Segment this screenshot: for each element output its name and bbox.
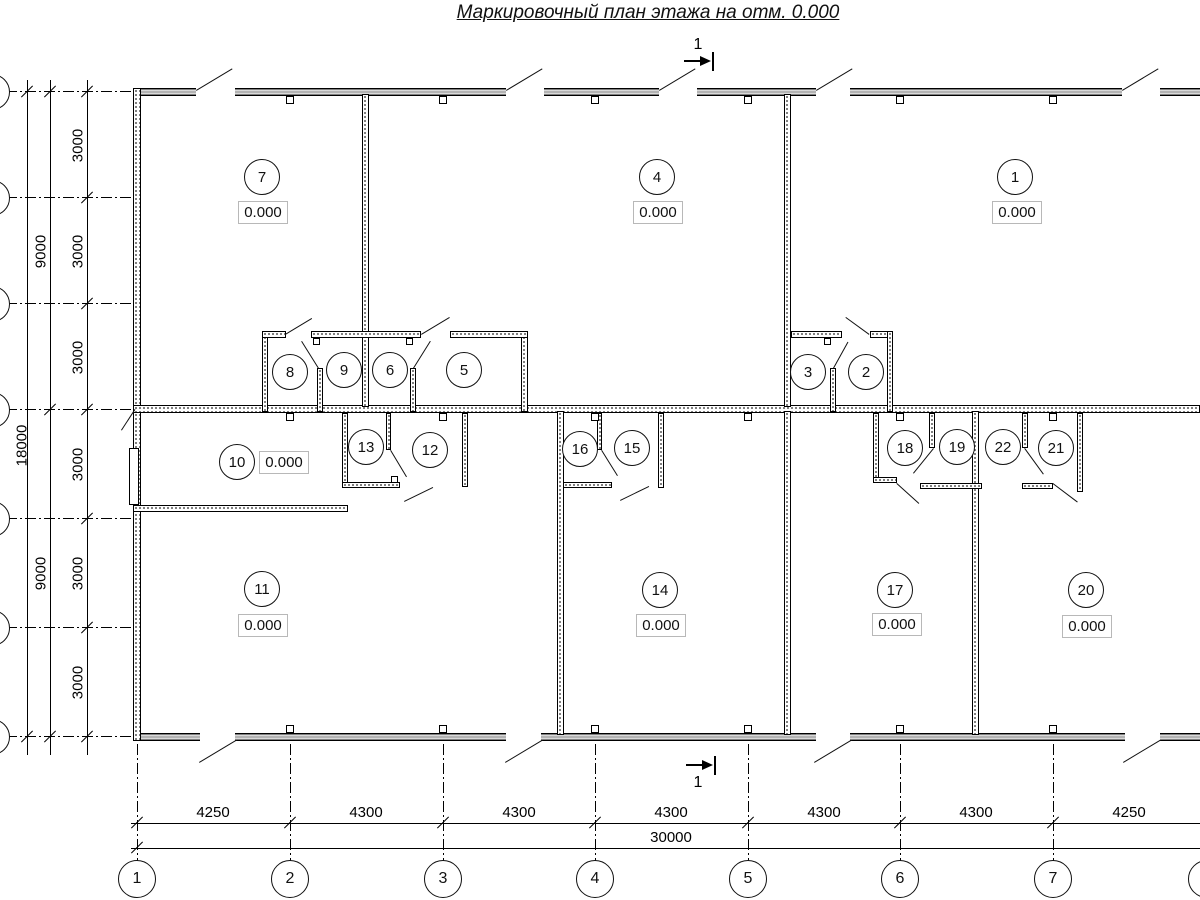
wall: [1022, 483, 1053, 489]
dim-label: 4300: [794, 804, 854, 821]
column-marker: [896, 96, 904, 104]
window-band: [544, 88, 659, 96]
door-swing: [620, 486, 649, 501]
room-number: 14: [652, 582, 669, 599]
room-number: 1: [1011, 169, 1019, 186]
dim-label: 18000: [14, 411, 31, 481]
column-marker: [439, 413, 447, 421]
column-marker: [439, 96, 447, 104]
elevation-label: 0.000: [633, 201, 683, 224]
wall: [784, 94, 791, 407]
room-circle: 1: [997, 159, 1033, 195]
window-band: [541, 733, 816, 741]
wall: [521, 331, 528, 412]
door-swing: [505, 739, 543, 763]
elevation-label: 0.000: [1062, 615, 1112, 638]
room-circle: 2: [848, 354, 884, 390]
axis-line: [290, 744, 291, 862]
elevation-label: 0.000: [992, 201, 1042, 224]
axis-circle: 6: [881, 860, 919, 898]
section-label: 1: [668, 36, 728, 54]
door-swing: [833, 342, 848, 369]
wall: [658, 413, 664, 488]
room-number: 18: [897, 440, 914, 457]
room-circle: 7: [244, 159, 280, 195]
door-swing: [1123, 739, 1161, 763]
column-marker: [744, 725, 752, 733]
room-circle: 10: [219, 444, 255, 480]
room-circle: 20: [1068, 572, 1104, 608]
elevation-label: 0.000: [238, 201, 288, 224]
drawing-title: Маркировочный план этажа на отм. 0.000: [368, 2, 928, 24]
room-circle: 19: [939, 429, 975, 465]
door-swing: [285, 318, 312, 335]
axis-line: [595, 744, 596, 862]
room-circle: 8: [272, 354, 308, 390]
axis-circle: 4: [576, 860, 614, 898]
room-circle: 3: [790, 354, 826, 390]
wall: [972, 411, 979, 735]
door-swing: [1122, 68, 1159, 90]
column-marker: [1049, 725, 1057, 733]
room-circle: 21: [1038, 430, 1074, 466]
window-band: [133, 88, 196, 96]
room-circle: 14: [642, 572, 678, 608]
room-circle: 11: [244, 571, 280, 607]
wall: [873, 477, 897, 483]
dimension-line: [87, 80, 88, 755]
elevation-label: 0.000: [238, 614, 288, 637]
column-marker: [896, 413, 904, 421]
room-number: 7: [258, 169, 266, 186]
axis-circle: [0, 501, 10, 537]
door-swing: [413, 341, 431, 369]
dim-label: 4300: [336, 804, 396, 821]
door-swing: [845, 317, 869, 335]
dim-label: 3000: [70, 544, 87, 604]
axis-circle: [0, 286, 10, 322]
column-marker: [286, 413, 294, 421]
room-circle: 9: [326, 352, 362, 388]
axis-number: 1: [133, 870, 142, 888]
column-marker: [286, 96, 294, 104]
window-band: [850, 88, 1122, 96]
axis-number: 6: [896, 870, 905, 888]
axis-number: 5: [744, 870, 753, 888]
window-band: [850, 733, 1125, 741]
wall: [887, 331, 893, 412]
floor-plan-canvas: Маркировочный план этажа на отм. 0.000: [0, 0, 1200, 900]
dim-label: 4250: [183, 804, 243, 821]
room-number: 4: [653, 169, 661, 186]
section-arrow-head: [702, 760, 713, 770]
door-stop: [391, 476, 398, 483]
column-marker: [591, 413, 599, 421]
room-number: 11: [254, 581, 270, 598]
axis-line: [6, 303, 133, 304]
dimension-line: [131, 823, 1200, 824]
room-number: 12: [422, 442, 439, 459]
room-number: 16: [572, 441, 589, 458]
dim-label: 4300: [489, 804, 549, 821]
elevation-label: 0.000: [872, 613, 922, 636]
room-circle: 13: [348, 429, 384, 465]
door-stop: [406, 338, 413, 345]
wall: [317, 368, 323, 412]
room-number: 6: [386, 362, 394, 379]
dim-label: 3000: [70, 328, 87, 388]
door-swing: [816, 68, 853, 90]
elevation-label: 0.000: [636, 614, 686, 637]
section-arrow-bar: [712, 52, 714, 71]
room-number: 22: [995, 439, 1012, 456]
column-marker: [744, 413, 752, 421]
axis-circle: [0, 719, 10, 755]
dim-label: 3000: [70, 222, 87, 282]
room-number: 8: [286, 364, 294, 381]
axis-circle: 2: [271, 860, 309, 898]
wall: [462, 413, 468, 487]
door-swing: [199, 739, 237, 763]
door-leaf: [129, 448, 139, 505]
dim-label: 4250: [1099, 804, 1159, 821]
axis-circle: 3: [424, 860, 462, 898]
wall: [311, 331, 421, 338]
axis-circle: 7: [1034, 860, 1072, 898]
door-swing: [404, 487, 433, 502]
window-band: [133, 733, 200, 741]
wall: [920, 483, 982, 489]
wall: [386, 413, 391, 450]
window-band: [1160, 88, 1200, 96]
wall: [1022, 413, 1028, 448]
room-number: 13: [358, 439, 375, 456]
door-swing: [196, 68, 233, 90]
dim-label-total: 30000: [636, 829, 706, 846]
wall: [362, 94, 369, 407]
wall: [342, 413, 348, 487]
column-marker: [591, 96, 599, 104]
column-marker: [1049, 96, 1057, 104]
wall-exterior-left: [133, 88, 141, 741]
door-swing: [896, 483, 919, 504]
window-band: [697, 88, 816, 96]
door-swing: [506, 68, 543, 90]
axis-line: [1053, 744, 1054, 862]
column-marker: [1049, 413, 1057, 421]
room-circle: 16: [562, 431, 598, 467]
door-swing: [421, 317, 450, 335]
axis-circle: [1188, 860, 1200, 898]
room-number: 15: [624, 440, 641, 457]
room-number: 20: [1078, 582, 1095, 599]
wall: [563, 482, 612, 488]
elevation-label: 0.000: [259, 451, 309, 474]
room-circle: 17: [877, 572, 913, 608]
dimension-line: [131, 848, 1200, 849]
door-swing: [814, 739, 852, 763]
room-circle: 4: [639, 159, 675, 195]
wall: [830, 368, 836, 412]
room-number: 21: [1048, 440, 1065, 457]
wall: [262, 331, 268, 412]
wall: [410, 368, 416, 412]
axis-circle: [0, 74, 10, 110]
axis-number: 2: [286, 870, 295, 888]
door-swing: [1052, 483, 1077, 502]
door-stop: [824, 338, 831, 345]
wall: [262, 331, 286, 338]
dim-label: 9000: [33, 544, 50, 604]
wall: [784, 411, 791, 735]
window-band: [235, 88, 506, 96]
section-arrow-head: [700, 56, 711, 66]
window-band: [235, 733, 506, 741]
axis-circle: [0, 610, 10, 646]
axis-number: 7: [1049, 870, 1058, 888]
dim-label: 3000: [70, 116, 87, 176]
dim-label: 3000: [70, 435, 87, 495]
axis-circle: 1: [118, 860, 156, 898]
section-label: 1: [668, 774, 728, 792]
axis-line: [748, 744, 749, 862]
room-number: 9: [340, 362, 348, 379]
axis-circle: [0, 392, 10, 428]
axis-line: [6, 627, 133, 628]
wall: [133, 505, 348, 512]
dim-label: 9000: [33, 222, 50, 282]
room-circle: 5: [446, 352, 482, 388]
room-number: 5: [460, 362, 468, 379]
room-number: 3: [804, 364, 812, 381]
room-number: 17: [887, 582, 904, 599]
section-arrow-bar: [714, 756, 716, 775]
column-marker: [744, 96, 752, 104]
room-circle: 22: [985, 429, 1021, 465]
wall-middle: [133, 405, 1200, 413]
dim-label: 4300: [641, 804, 701, 821]
room-number: 2: [862, 364, 870, 381]
wall: [791, 331, 842, 338]
wall: [929, 413, 935, 448]
room-number: 19: [949, 439, 966, 456]
window-band: [1160, 733, 1200, 741]
room-number: 10: [229, 454, 246, 471]
axis-number: 3: [439, 870, 448, 888]
room-circle: 18: [887, 430, 923, 466]
wall: [873, 413, 879, 483]
dimension-line: [50, 80, 51, 755]
column-marker: [439, 725, 447, 733]
axis-line: [443, 744, 444, 862]
column-marker: [896, 725, 904, 733]
door-swing: [390, 450, 407, 477]
column-marker: [286, 725, 294, 733]
wall: [450, 331, 528, 338]
axis-line: [900, 744, 901, 862]
wall: [1077, 413, 1083, 492]
room-circle: 15: [614, 430, 650, 466]
dim-label: 3000: [70, 653, 87, 713]
axis-line: [6, 197, 133, 198]
column-marker: [591, 725, 599, 733]
room-circle: 12: [412, 432, 448, 468]
room-circle: 6: [372, 352, 408, 388]
axis-number: 4: [591, 870, 600, 888]
axis-circle: 5: [729, 860, 767, 898]
door-swing: [659, 68, 696, 90]
wall: [557, 411, 564, 735]
dim-label: 4300: [946, 804, 1006, 821]
axis-circle: [0, 180, 10, 216]
axis-line: [6, 518, 133, 519]
door-stop: [313, 338, 320, 345]
